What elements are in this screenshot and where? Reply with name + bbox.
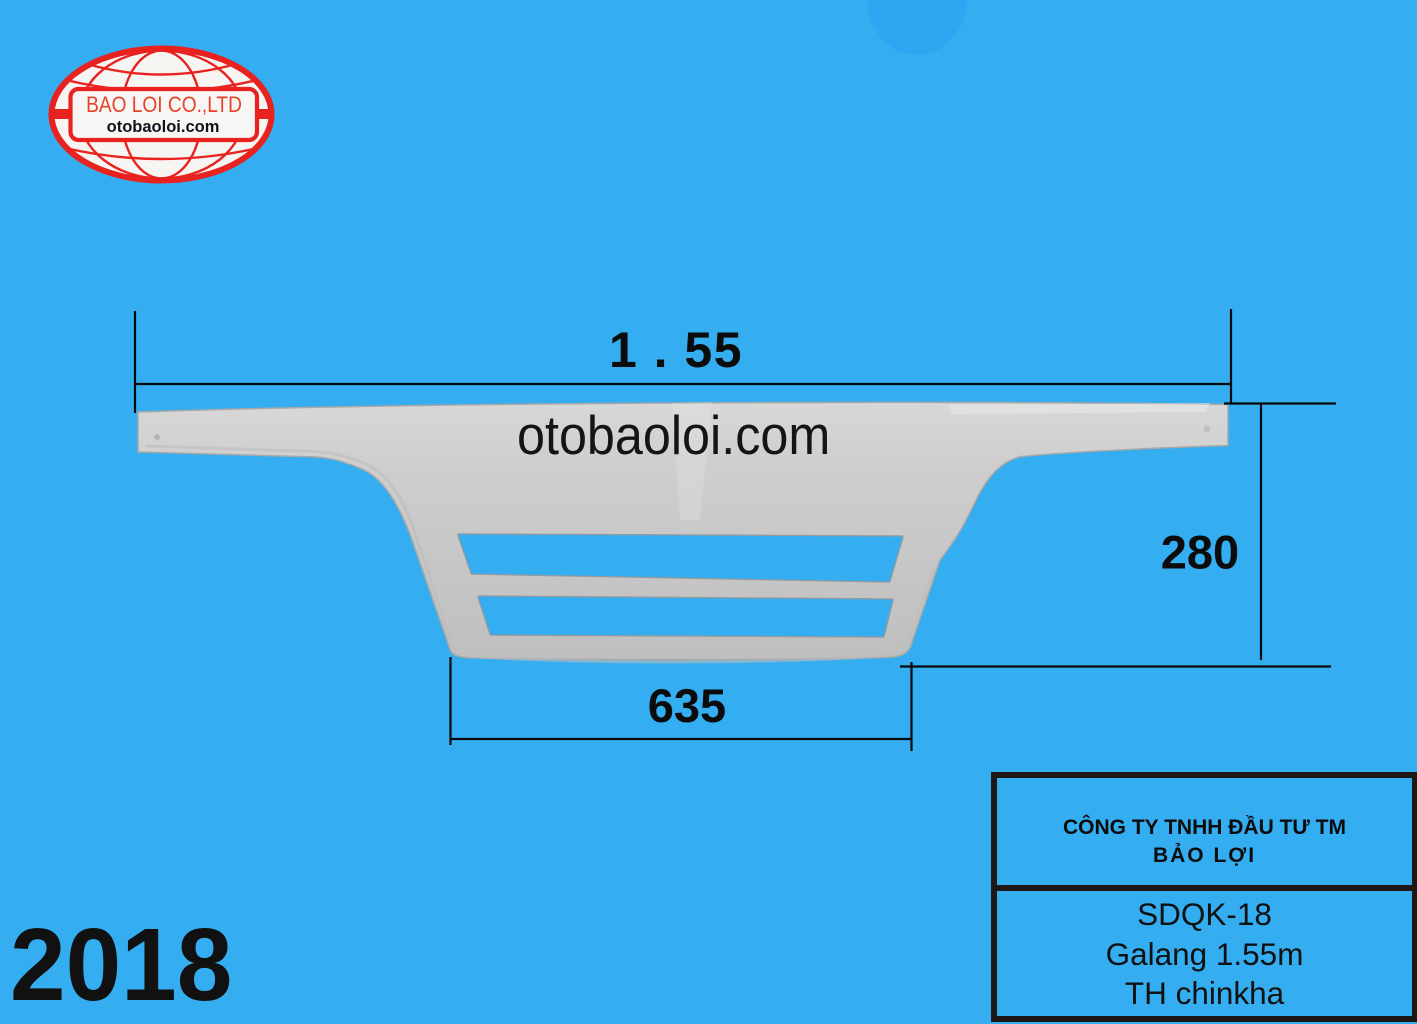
svg-text:otobaoloi.com: otobaoloi.com xyxy=(107,118,220,136)
svg-text:1 . 55: 1 . 55 xyxy=(609,322,743,378)
svg-text:otobaoloi.com: otobaoloi.com xyxy=(517,405,830,467)
svg-text:BAO LOI CO.,LTD: BAO LOI CO.,LTD xyxy=(86,93,242,118)
svg-text:635: 635 xyxy=(648,679,726,732)
svg-text:280: 280 xyxy=(1161,526,1239,579)
